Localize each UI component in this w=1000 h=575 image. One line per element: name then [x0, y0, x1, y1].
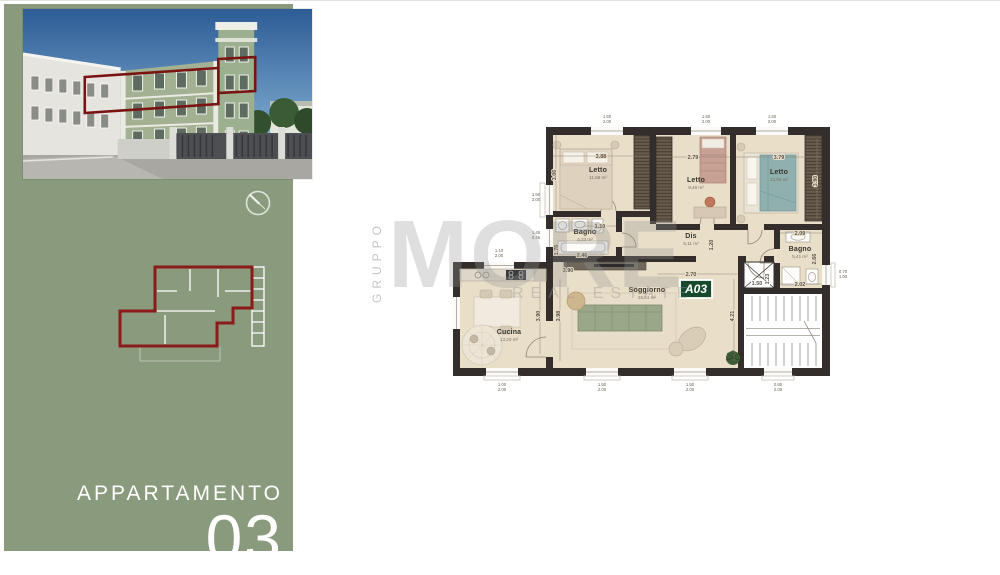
svg-text:13,20 m²: 13,20 m² — [500, 337, 519, 342]
compass-icon — [240, 185, 276, 221]
room-label-letto-3: Letto — [770, 169, 788, 176]
svg-text:1.502.00: 1.502.00 — [702, 114, 711, 124]
dim-bagno1-h: 1.76 — [554, 245, 560, 256]
dim-letto3-h: 3.90 — [813, 176, 819, 187]
building-render-photo — [23, 9, 312, 179]
room-label-soggiorno: Soggiorno — [629, 287, 666, 294]
svg-text:5,11 m²: 5,11 m² — [683, 241, 699, 246]
svg-text:9,46 m²: 9,46 m² — [688, 185, 704, 190]
svg-text:1.450.45: 1.450.45 — [532, 230, 541, 240]
dim-cucina-h: 3.90 — [536, 311, 542, 322]
room-label-letto-1: Letto — [589, 167, 607, 174]
svg-text:0.802.00: 0.802.00 — [774, 382, 783, 392]
svg-text:1.002.00: 1.002.00 — [498, 382, 507, 392]
room-label-dis: Dis — [685, 233, 697, 240]
svg-text:26,51 m²: 26,51 m² — [638, 295, 657, 300]
svg-text:13,56 m²: 13,56 m² — [770, 177, 789, 182]
svg-text:1.502.00: 1.502.00 — [603, 114, 612, 124]
room-label-bagno-1: Bagno — [574, 229, 597, 236]
room-label-bagno-2: Bagno — [789, 246, 812, 253]
svg-text:1.502.00: 1.502.00 — [686, 382, 695, 392]
dim-sideboard: 3.90 — [563, 268, 574, 274]
flyer-page: APPARTAMENTO 03 — [0, 0, 1000, 550]
dim-bagno1-w: 2.46 — [577, 253, 588, 259]
svg-text:5,41 m²: 5,41 m² — [792, 254, 808, 259]
svg-text:1.502.00: 1.502.00 — [532, 192, 541, 202]
room-label-cucina: Cucina — [497, 329, 522, 336]
dim-letto3-w: 3.79 — [774, 155, 785, 161]
dim-bagno2-h: 2.66 — [812, 254, 818, 265]
unit-badge: A03 — [680, 280, 712, 298]
watermark-gruppo: GRUPPO — [370, 223, 384, 303]
bed-3 — [737, 143, 798, 223]
svg-text:1.102.00: 1.102.00 — [495, 248, 504, 258]
bed-1 — [553, 141, 619, 209]
svg-text:11,86 m²: 11,86 m² — [589, 175, 607, 180]
dim-soggiorno-w: 2.70 — [686, 272, 697, 278]
dim-bagno2-w2: 2.02 — [795, 282, 806, 288]
miniplan-unit-outline — [120, 267, 252, 346]
dim-elevator-w: 1.50 — [752, 281, 763, 287]
unit-badge-text: A03 — [684, 282, 707, 296]
dim-bagno2-w: 2.09 — [795, 231, 806, 237]
svg-text:0.701.00: 0.701.00 — [839, 269, 848, 279]
room-label-letto-2: Letto — [687, 177, 705, 184]
miniplan-outline — [105, 251, 270, 371]
dim-elevator-h: 1.23 — [765, 274, 771, 285]
dim-soggiorno-h2: 4.21 — [730, 311, 736, 322]
svg-text:1.502.00: 1.502.00 — [598, 382, 607, 392]
dim-letto1-h: 3.06 — [552, 170, 558, 181]
stairwell-floor — [744, 294, 822, 368]
svg-text:1.502.00: 1.502.00 — [768, 114, 777, 124]
white-wing — [23, 54, 121, 161]
dim-letto2-w: 2.79 — [688, 155, 699, 161]
dim-soggiorno-h: 3.98 — [556, 311, 562, 322]
apartment-number: 03 — [4, 505, 283, 571]
floor-plan: 3.88 2.79 3.79 3.06 3.90 1.10 1.76 2.46 … — [448, 99, 898, 399]
dim-dis: 1.20 — [709, 240, 715, 251]
dim-letto1-w: 3.88 — [596, 154, 607, 160]
svg-text:4,33 m²: 4,33 m² — [577, 237, 593, 242]
